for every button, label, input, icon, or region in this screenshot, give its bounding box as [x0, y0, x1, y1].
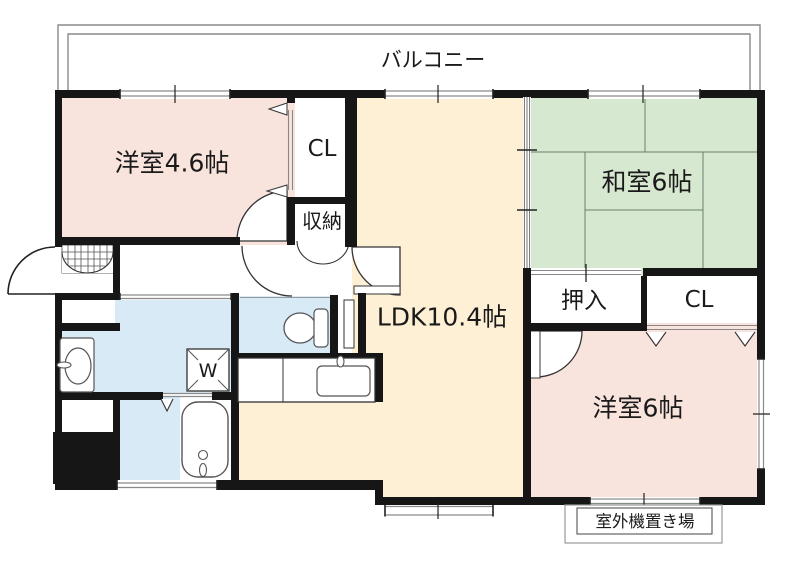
west-room-large-label: 洋室6帖	[593, 394, 684, 423]
wall-bottom-right	[375, 497, 765, 505]
kitchen-faucet-icon	[337, 356, 344, 367]
toilet-door-leaf	[344, 300, 354, 348]
wall-alcove-bottom	[55, 323, 120, 331]
hall-door-arc-icon	[242, 246, 292, 296]
japanese-room-label: 和室6帖	[602, 168, 693, 197]
washroom-sliding-door	[120, 293, 231, 300]
wall-cl-stub	[287, 90, 295, 103]
west-room-large-door-leaf	[530, 331, 540, 378]
wall-bath-top-left	[55, 392, 163, 400]
wall-hall-ldk	[358, 293, 366, 357]
west-room-small-label: 洋室4.6帖	[115, 149, 230, 178]
washing-machine: W	[187, 349, 229, 391]
toilet-tank-icon	[314, 309, 328, 347]
washbasin	[57, 338, 94, 392]
wall-washroom-top	[55, 293, 120, 300]
pipe-shaft-block	[53, 432, 117, 484]
washroom-alcove	[58, 298, 115, 325]
closet-right-label: CL	[685, 287, 714, 313]
storage-folding-door-icon	[297, 241, 349, 264]
ldk-door-leaf	[354, 286, 400, 294]
wall-counter-right	[375, 353, 383, 402]
kitchen-counter	[238, 356, 375, 402]
toilet-bowl-icon	[284, 313, 316, 343]
ldk-label: LDK10.4帖	[377, 303, 507, 332]
wall-japanese-room-bottom	[643, 268, 765, 276]
wall-west-room-small-bottom	[55, 237, 240, 245]
storage-label: 収納	[302, 209, 342, 233]
washbasin-faucet-icon	[57, 362, 71, 368]
wall-bath-top-right	[212, 392, 239, 400]
oshiire-label: 押入	[561, 288, 607, 314]
wall-storage-top	[295, 197, 353, 204]
entrance-door-arc-icon	[8, 247, 55, 294]
wall-toilet-right	[330, 295, 338, 357]
floor-plan-drawing: W 室外機置き場 バルコニー 洋室4.6帖 CL 収納 和室6帖 LDK10.4…	[0, 0, 800, 568]
closet-upper-label: CL	[308, 136, 337, 162]
wall-center-vertical	[523, 268, 531, 497]
outdoor-unit-label: 室外機置き場	[596, 512, 695, 531]
wall-oshiire-bottom	[523, 323, 647, 331]
balcony-label: バルコニー	[381, 48, 486, 72]
kitchen-sink-icon	[317, 366, 370, 396]
window-bathroom-bottom	[117, 480, 217, 490]
entrance-tile	[62, 245, 113, 273]
wall-entrance-right	[113, 245, 120, 295]
washer-label: W	[199, 360, 218, 382]
outdoor-unit-area: 室外機置き場	[565, 505, 722, 543]
wall-oshiire-cl-divider	[641, 276, 647, 331]
wall-storage-left	[287, 197, 295, 245]
bathtub-handle-icon	[200, 464, 207, 477]
wall-left-upper	[55, 90, 62, 247]
bathtub	[182, 402, 228, 477]
floor-plan-page: W 室外機置き場 バルコニー 洋室4.6帖 CL 収納 和室6帖 LDK10.4…	[0, 0, 800, 568]
wall-cl-east	[345, 90, 357, 247]
